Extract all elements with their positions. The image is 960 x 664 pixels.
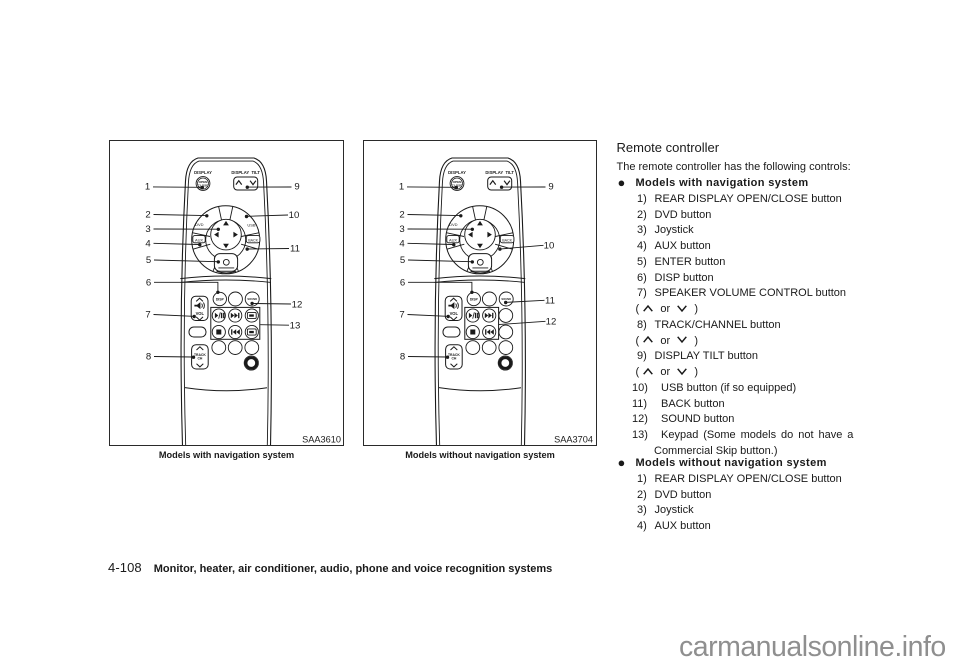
svg-text:DVD: DVD (449, 222, 458, 227)
svg-text:6: 6 (400, 277, 405, 288)
svg-text:12: 12 (292, 299, 303, 310)
svg-text:VOL: VOL (196, 311, 205, 316)
svg-text:VOL: VOL (450, 311, 459, 316)
svg-text:5: 5 (146, 255, 151, 266)
svg-text:AUX: AUX (195, 237, 203, 242)
svg-text:DISP: DISP (470, 297, 479, 301)
svg-text:3: 3 (145, 224, 150, 235)
svg-text:SOUND: SOUND (501, 297, 511, 301)
svg-text:DISPLAY: DISPLAY (194, 170, 212, 175)
svg-text:USB: USB (247, 223, 256, 228)
svg-text:2: 2 (399, 209, 404, 220)
svg-text:DISPLAY TILT: DISPLAY TILT (485, 170, 514, 175)
svg-text:7: 7 (399, 309, 404, 320)
svg-text:BACK: BACK (248, 238, 258, 242)
svg-text:5: 5 (400, 255, 405, 266)
svg-text:SAA3610: SAA3610 (302, 435, 341, 445)
svg-text:7: 7 (145, 309, 150, 320)
svg-text:3: 3 (399, 224, 404, 235)
svg-text:4: 4 (145, 238, 151, 249)
svg-text:SOUND: SOUND (247, 297, 257, 301)
svg-text:1: 1 (399, 181, 404, 192)
svg-text:BACK: BACK (502, 238, 512, 242)
svg-text:8: 8 (400, 351, 405, 362)
svg-text:CH: CH (197, 357, 202, 361)
svg-text:11: 11 (545, 295, 555, 306)
svg-text:AUX: AUX (449, 237, 457, 242)
svg-text:1: 1 (145, 181, 150, 192)
svg-text:DISPLAY: DISPLAY (448, 170, 466, 175)
svg-text:12: 12 (546, 316, 557, 327)
svg-text:6: 6 (146, 277, 151, 288)
svg-text:11: 11 (290, 243, 300, 254)
svg-text:13: 13 (290, 320, 301, 331)
svg-text:9: 9 (548, 181, 553, 192)
svg-text:10: 10 (289, 210, 300, 221)
svg-text:9: 9 (294, 181, 299, 192)
svg-text:8: 8 (146, 351, 151, 362)
svg-text:CH: CH (451, 357, 456, 361)
svg-text:10: 10 (544, 240, 555, 251)
svg-text:DISPLAY TILT: DISPLAY TILT (231, 170, 260, 175)
svg-text:4: 4 (399, 238, 405, 249)
svg-text:SAA3704: SAA3704 (554, 435, 593, 445)
svg-text:DISP: DISP (216, 297, 225, 301)
svg-text:DVD: DVD (195, 222, 204, 227)
svg-text:2: 2 (145, 209, 150, 220)
